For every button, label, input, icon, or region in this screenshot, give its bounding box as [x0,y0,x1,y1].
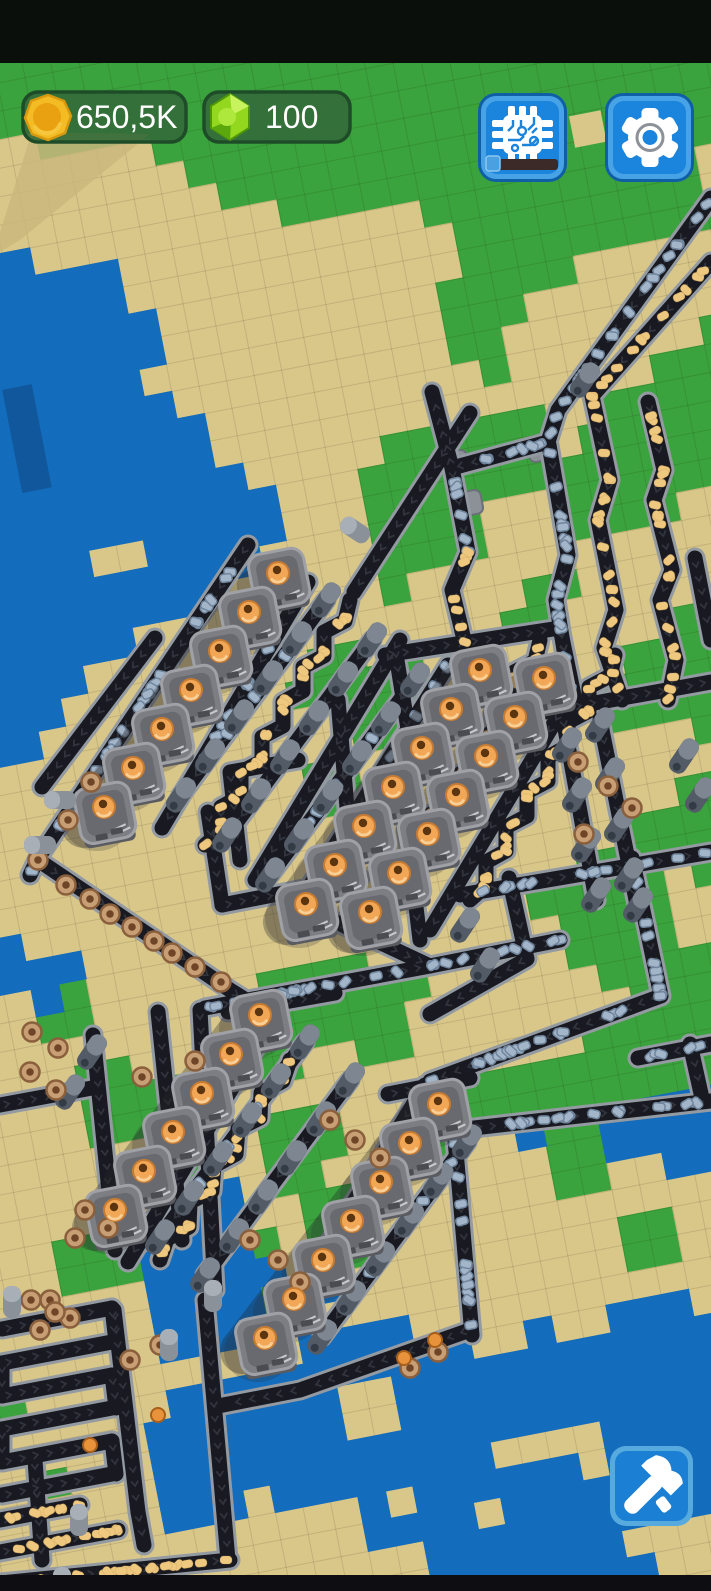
svg-text:650,5K: 650,5K [76,99,177,135]
svg-text:100: 100 [265,99,318,135]
